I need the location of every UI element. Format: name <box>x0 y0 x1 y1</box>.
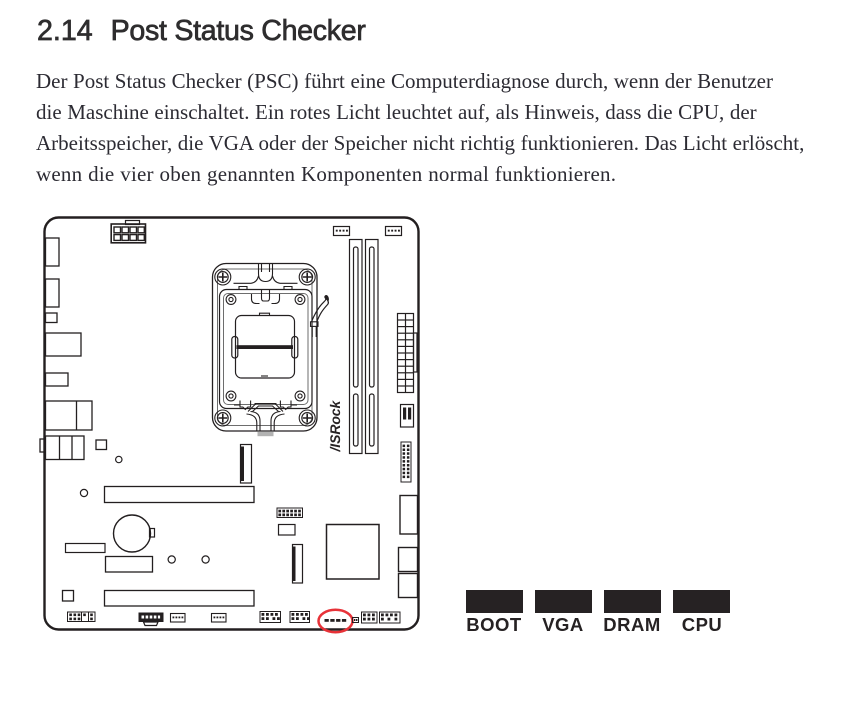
svg-text:/ISRock: /ISRock <box>327 400 343 453</box>
